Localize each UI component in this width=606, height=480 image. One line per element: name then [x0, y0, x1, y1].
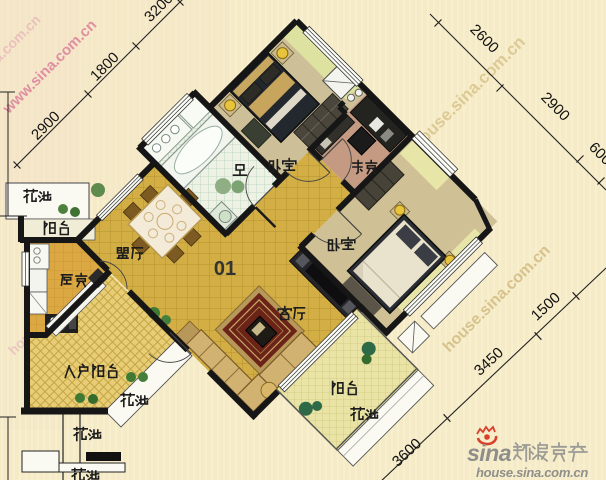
svg-text:01: 01	[214, 258, 236, 280]
svg-text:sina: sina	[467, 440, 512, 466]
svg-text:house.sina.com.cn: house.sina.com.cn	[476, 465, 588, 480]
